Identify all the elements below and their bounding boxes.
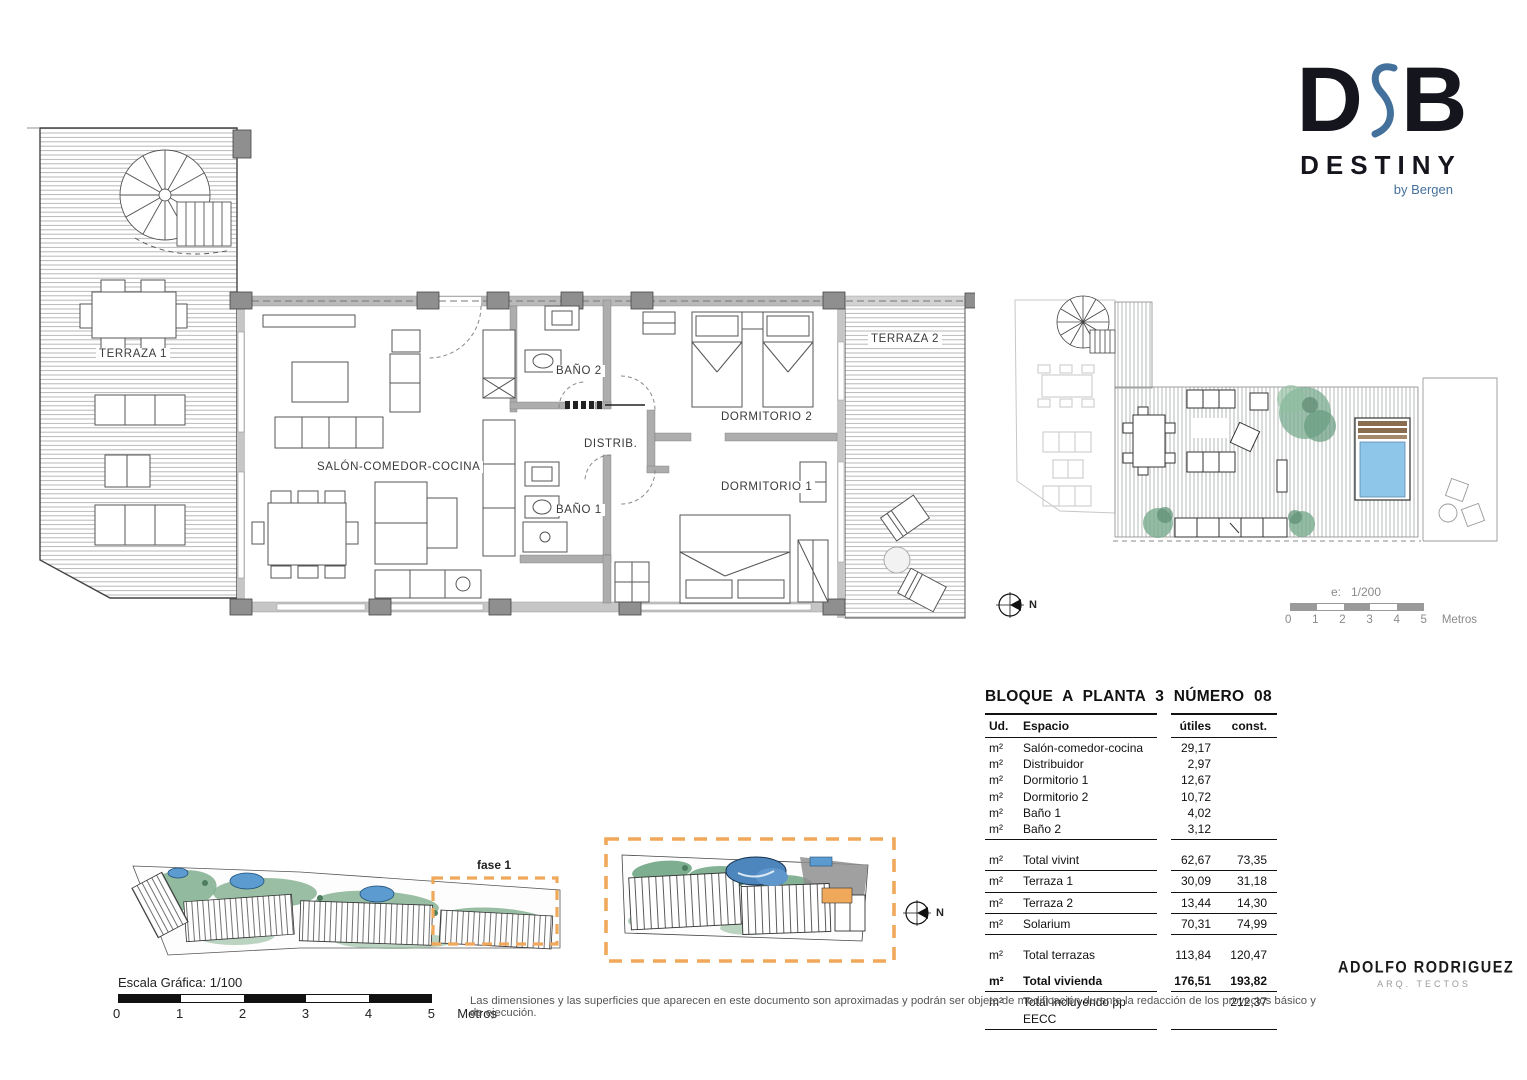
logo-byline: by Bergen bbox=[1283, 182, 1479, 197]
room-label-dorm1: DORMITORIO 1 bbox=[718, 481, 815, 493]
main-scalebar: Escala Gráfica: 1/100 01 23 45 Metros bbox=[118, 975, 435, 1021]
room-label-dorm2: DORMITORIO 2 bbox=[718, 411, 815, 423]
logo-dsb: D B bbox=[1283, 52, 1479, 148]
room-label-terraza2: TERRAZA 2 bbox=[868, 333, 942, 345]
siteplan-detail bbox=[600, 833, 910, 973]
logo-wordmark: DESTINY bbox=[1283, 150, 1479, 181]
table-row: m²Dormitorio 1 12,67 bbox=[985, 772, 1277, 788]
solarium-plan-drawing bbox=[1005, 285, 1510, 575]
table-row: m²Terraza 2 13,4414,30 bbox=[985, 895, 1277, 911]
table-row: m²Baño 2 3,12 bbox=[985, 821, 1277, 837]
logo-letter-b: B bbox=[1401, 55, 1465, 145]
main-scale-ticks: 01 23 45 Metros bbox=[113, 1006, 435, 1021]
table-row: m²Solarium 70,3174,99 bbox=[985, 916, 1277, 932]
table-rule bbox=[985, 991, 1277, 992]
table-rule bbox=[985, 934, 1277, 935]
dorm2-furniture bbox=[643, 312, 813, 407]
solarium-scale-ticks: 01 23 45 Metros bbox=[1285, 614, 1427, 626]
fase1-label: fase 1 bbox=[477, 858, 511, 872]
areas-table: BLOQUE A PLANTA 3 NÚMERO 08 Ud. Espacio … bbox=[985, 688, 1277, 1032]
logo-s-glyph bbox=[1361, 54, 1401, 146]
room-label-bano2: BAÑO 2 bbox=[553, 365, 605, 377]
salon-furniture bbox=[252, 315, 515, 598]
table-rule bbox=[985, 870, 1277, 871]
logo-letter-d: D bbox=[1297, 55, 1361, 145]
solarium-spiral-stair bbox=[1057, 296, 1115, 353]
compass-icon bbox=[996, 590, 1026, 620]
north-arrow-solarium: N bbox=[996, 590, 1037, 620]
table-row: m²Total terrazas 113,84120,47 bbox=[985, 947, 1277, 963]
architect-name: ADOLFO RODRIGUEZ bbox=[1338, 959, 1510, 977]
plan-sheet: TERRAZA 1 SALÓN-COMEDOR-COCINA BAÑO 2 DI… bbox=[0, 0, 1527, 1080]
main-scale-bar bbox=[118, 994, 432, 1003]
bano2-fixtures bbox=[525, 306, 645, 409]
disclaimer-text: Las dimensiones y las superficies que ap… bbox=[470, 995, 1320, 1019]
room-label-terraza1: TERRAZA 1 bbox=[96, 348, 170, 360]
north-label: N bbox=[936, 907, 944, 919]
main-floorplan-drawing bbox=[25, 110, 975, 640]
room-label-distrib: DISTRIB. bbox=[581, 438, 640, 450]
table-row: m²Distribuidor 2,97 bbox=[985, 756, 1277, 772]
table-rule bbox=[985, 713, 1277, 715]
solarium-right-area bbox=[1423, 378, 1497, 541]
solarium-pool bbox=[1355, 418, 1410, 500]
north-label: N bbox=[1029, 599, 1037, 611]
detail-lagoon bbox=[726, 857, 788, 886]
main-scale-label: Escala Gráfica: 1/100 bbox=[118, 975, 435, 990]
table-rule bbox=[985, 737, 1277, 738]
room-label-salon: SALÓN-COMEDOR-COCINA bbox=[314, 461, 483, 473]
table-row-total: m²Total vivienda 176,51193,82 bbox=[985, 973, 1277, 989]
table-rule bbox=[985, 1029, 1277, 1030]
compass-icon bbox=[903, 898, 933, 928]
table-row: m²Salón-comedor-cocina 29,17 bbox=[985, 740, 1277, 756]
table-row: m²Terraza 1 30,0931,18 bbox=[985, 873, 1277, 889]
table-header-row: Ud. Espacio útiles const. bbox=[985, 717, 1277, 735]
table-row: m²Baño 1 4,02 bbox=[985, 805, 1277, 821]
solarium-scale-unit: Metros bbox=[1442, 614, 1477, 626]
solarium-scale-bar bbox=[1290, 603, 1424, 611]
table-row: m²Dormitorio 2 10,72 bbox=[985, 789, 1277, 805]
table-row: m²Total vivint 62,6773,35 bbox=[985, 852, 1277, 868]
solarium-scalebar: e: 1/200 01 23 45 Metros bbox=[1290, 585, 1427, 626]
detail-pool-small bbox=[810, 857, 832, 866]
brand-logo: D B DESTINY by Bergen bbox=[1283, 52, 1479, 197]
table-rule bbox=[985, 892, 1277, 893]
subject-unit-highlight bbox=[822, 888, 852, 903]
table-rule bbox=[985, 913, 1277, 914]
table-rule bbox=[985, 839, 1277, 840]
solarium-scale-label: e: 1/200 bbox=[1290, 585, 1422, 599]
architect-logo: ADOLFO RODRIGUEZ ARQ. TECTOS bbox=[1338, 960, 1510, 989]
areas-table-title: BLOQUE A PLANTA 3 NÚMERO 08 bbox=[985, 688, 1277, 706]
architect-subtitle: ARQ. TECTOS bbox=[1338, 979, 1510, 989]
north-arrow-site: N bbox=[903, 898, 944, 928]
room-label-bano1: BAÑO 1 bbox=[553, 504, 605, 516]
